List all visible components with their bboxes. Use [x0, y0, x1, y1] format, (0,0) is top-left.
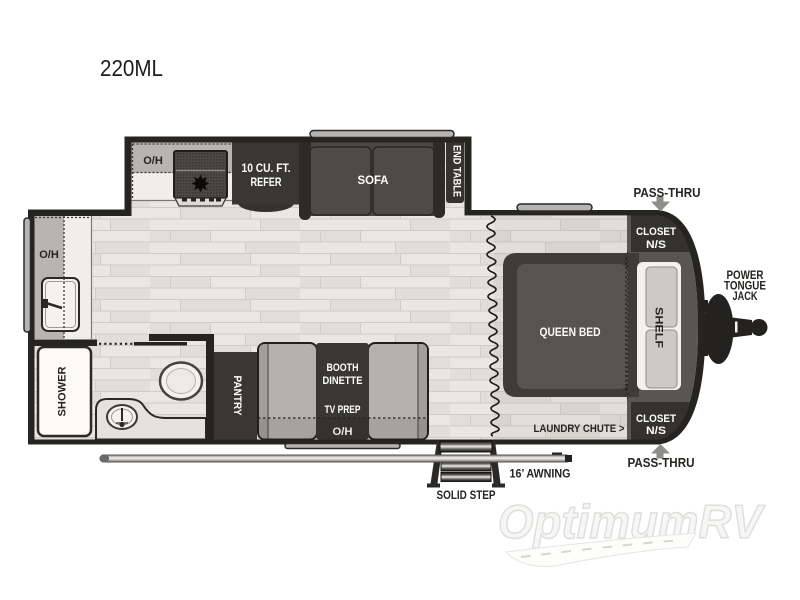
svg-text:PASS-THRU: PASS-THRU: [628, 456, 695, 470]
svg-text:CLOSET: CLOSET: [636, 226, 676, 238]
svg-text:N/S: N/S: [646, 425, 666, 437]
svg-text:16’ AWNING: 16’ AWNING: [510, 467, 571, 481]
svg-text:REFER: REFER: [251, 177, 283, 189]
svg-text:BOOTH: BOOTH: [327, 362, 359, 374]
svg-text:PASS-THRU: PASS-THRU: [634, 186, 701, 200]
svg-text:DINETTE: DINETTE: [323, 375, 363, 387]
svg-text:PANTRY: PANTRY: [231, 376, 243, 417]
svg-text:SOFA: SOFA: [358, 173, 389, 187]
svg-text:QUEEN BED: QUEEN BED: [540, 325, 601, 339]
svg-text:O/H: O/H: [143, 155, 163, 167]
svg-text:END TABLE: END TABLE: [451, 145, 463, 197]
svg-text:10 CU. FT.: 10 CU. FT.: [242, 163, 291, 175]
svg-text:SHOWER: SHOWER: [57, 366, 69, 416]
svg-text:JACK: JACK: [733, 291, 759, 303]
svg-text:SHELF: SHELF: [653, 307, 665, 348]
svg-text:LAUNDRY CHUTE >: LAUNDRY CHUTE >: [534, 423, 625, 435]
svg-text:SOLID STEP: SOLID STEP: [437, 488, 496, 502]
svg-text:220ML: 220ML: [100, 55, 163, 81]
svg-text:N/S: N/S: [646, 239, 666, 251]
svg-text:O/H: O/H: [39, 249, 59, 261]
svg-text:CLOSET: CLOSET: [636, 413, 676, 425]
svg-text:TV PREP: TV PREP: [325, 404, 361, 416]
